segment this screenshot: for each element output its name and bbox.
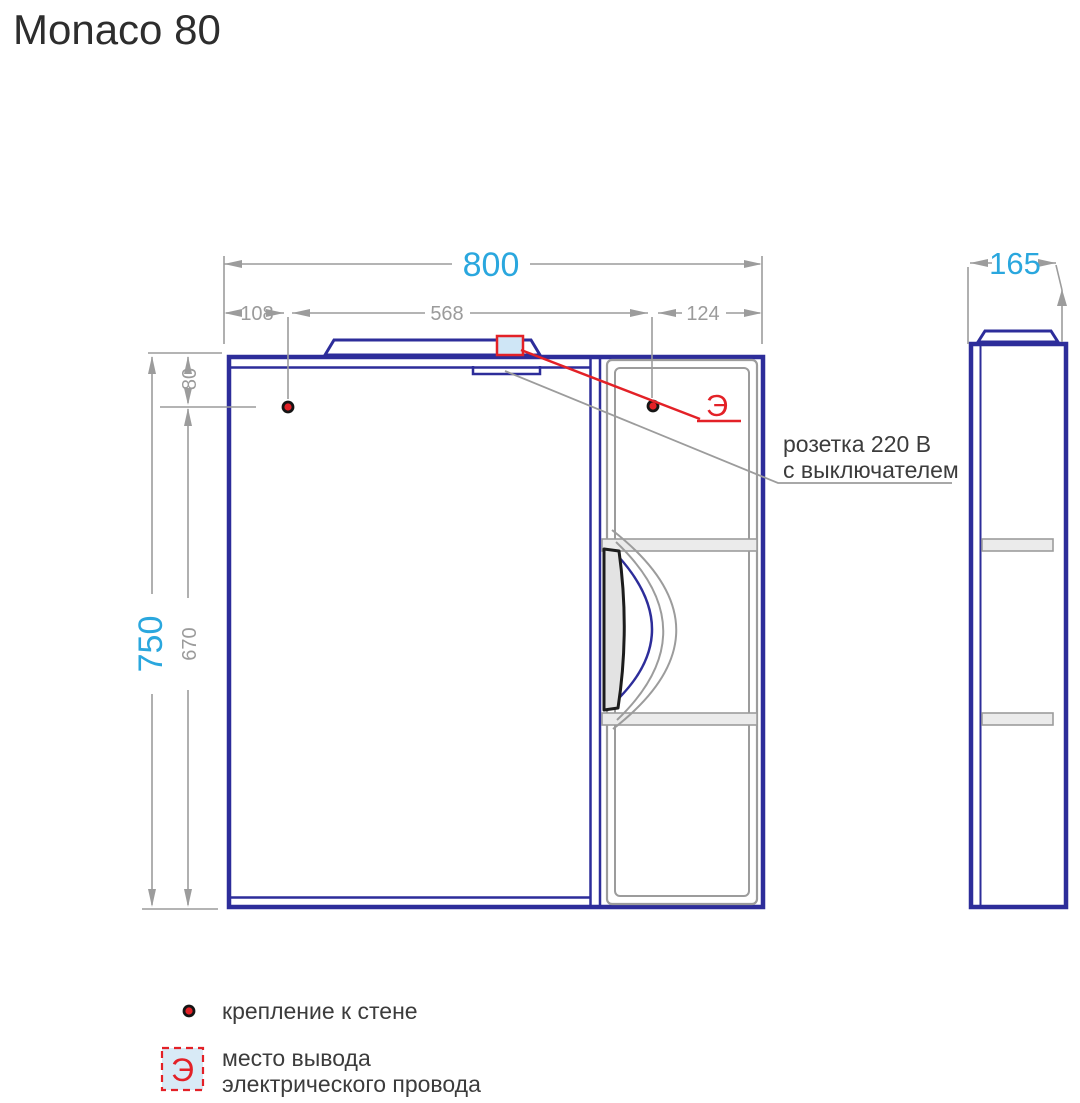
dim-670-label: 670 xyxy=(179,627,201,660)
ext-side-bend xyxy=(1056,265,1062,290)
dim-depth-label: 165 xyxy=(989,246,1041,281)
lamp-housing-side xyxy=(978,331,1058,342)
front-view xyxy=(229,336,763,907)
dim-568-label: 568 xyxy=(430,303,463,325)
technical-drawing: 800 108 568 124 750 670 80 165 Э розетка… xyxy=(0,0,1080,1103)
dim-108-label: 108 xyxy=(240,303,273,325)
legend-mount-label: крепление к стене xyxy=(222,998,418,1024)
legend-electric-label-line2: электрического провода xyxy=(222,1071,481,1097)
door-handle xyxy=(604,549,624,710)
cabinet-body-side xyxy=(971,344,1066,907)
legend-electric-label-line1: место вывода xyxy=(222,1045,371,1071)
socket-label-line2: с выключателем xyxy=(783,457,959,483)
shelf-bottom-side xyxy=(982,713,1053,725)
legend: крепление к стене Э место вывода электри… xyxy=(162,998,481,1097)
cabinet-body-front xyxy=(229,357,763,907)
socket-label-line1: розетка 220 В xyxy=(783,431,931,457)
legend-mount-symbol xyxy=(184,1006,194,1016)
legend-electric-symbol: Э xyxy=(171,1052,194,1088)
shelf-top-side xyxy=(982,539,1053,551)
dim-height-label: 750 xyxy=(132,616,170,673)
dim-width-label: 800 xyxy=(463,246,520,284)
electric-symbol: Э xyxy=(706,388,728,423)
mount-point-left xyxy=(283,402,293,412)
dim-124-label: 124 xyxy=(686,303,719,325)
side-view xyxy=(971,331,1066,907)
dim-80-label: 80 xyxy=(179,368,201,390)
electric-outlet-marker xyxy=(497,336,523,355)
